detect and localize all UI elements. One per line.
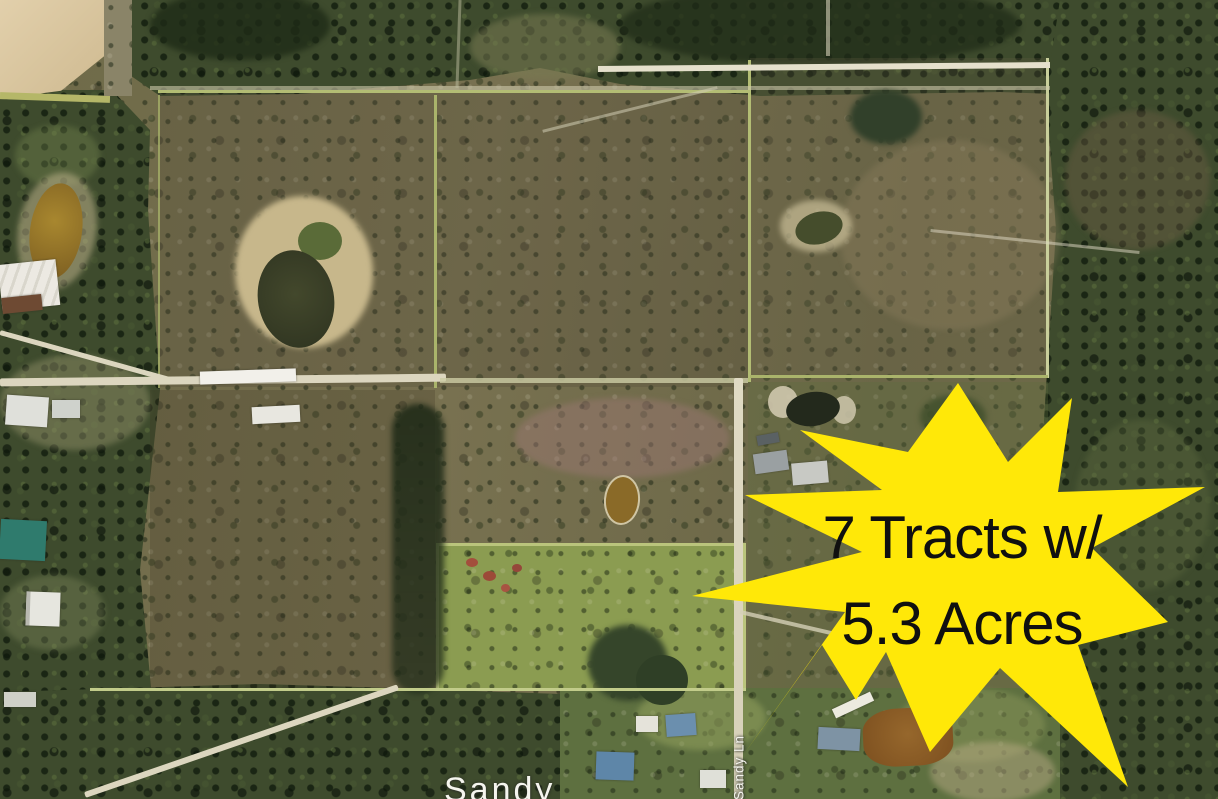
building-white-small bbox=[4, 692, 36, 707]
forest-brown-patch bbox=[1065, 110, 1210, 250]
boundary-line bbox=[158, 90, 750, 93]
parcel-right-light-center bbox=[840, 140, 1060, 330]
shrub-mauve-patch bbox=[515, 398, 730, 478]
building-bluegray-roof bbox=[817, 727, 860, 751]
road-label-sandy-ln-vertical: Sandy Ln bbox=[732, 728, 747, 799]
building-house bbox=[5, 395, 49, 428]
track-horizontal-mid bbox=[440, 378, 748, 383]
tree-lane-shadow bbox=[392, 404, 444, 694]
callout-line1: 7 Tracts w/ bbox=[762, 495, 1162, 581]
boundary-line bbox=[90, 688, 746, 691]
callout-text: 7 Tracts w/ 5.3 Acres bbox=[762, 495, 1162, 667]
road-top bbox=[150, 86, 1050, 90]
debris-red bbox=[512, 564, 522, 572]
aerial-listing-image: 7 Tracts w/ 5.3 Acres Sandy Ln Sandy bbox=[0, 0, 1218, 799]
building-teal-roof bbox=[0, 519, 47, 561]
building-house bbox=[52, 400, 80, 418]
building-white-shed bbox=[791, 460, 829, 485]
boundary-line bbox=[748, 60, 751, 382]
tree-cluster bbox=[636, 655, 688, 705]
boundary-line bbox=[434, 95, 437, 388]
callout-line2: 5.3 Acres bbox=[762, 581, 1162, 667]
debris-red bbox=[483, 571, 496, 581]
boundary-line bbox=[1046, 58, 1049, 378]
boundary-line bbox=[750, 375, 1048, 378]
building-shed bbox=[252, 405, 301, 424]
dirt-strip bbox=[104, 0, 132, 96]
building-blue-roof bbox=[665, 713, 696, 737]
road-label-bottom-partial: Sandy bbox=[444, 771, 555, 799]
tree-cluster bbox=[850, 90, 922, 144]
debris-red bbox=[501, 584, 510, 592]
debris-red bbox=[466, 558, 478, 567]
building-white-small bbox=[700, 770, 726, 788]
tree-cluster bbox=[920, 395, 986, 439]
trail-top-edge bbox=[826, 0, 830, 56]
pond-bottom-brown bbox=[862, 706, 955, 769]
boundary-line bbox=[158, 95, 160, 388]
building-white-house bbox=[25, 591, 60, 626]
building-white-small bbox=[636, 716, 658, 732]
building-blue-roof bbox=[596, 751, 635, 780]
